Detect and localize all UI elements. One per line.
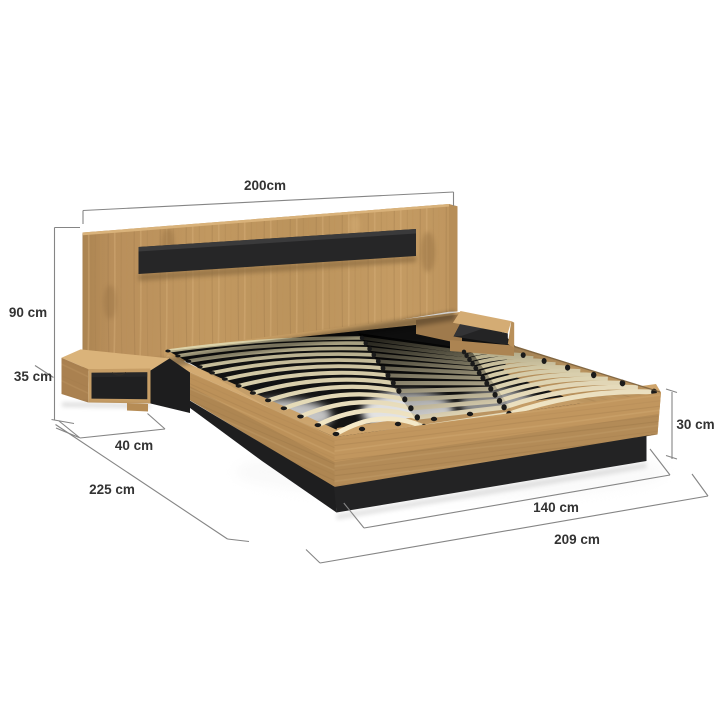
svg-text:40 cm: 40 cm <box>115 438 153 453</box>
svg-text:90 cm: 90 cm <box>9 305 47 320</box>
svg-text:225 cm: 225 cm <box>89 482 135 497</box>
svg-text:209 cm: 209 cm <box>554 532 600 547</box>
svg-text:140 cm: 140 cm <box>533 500 579 515</box>
svg-text:200cm: 200cm <box>244 178 286 193</box>
svg-text:30 cm: 30 cm <box>676 417 714 432</box>
svg-text:35 cm: 35 cm <box>14 369 52 384</box>
